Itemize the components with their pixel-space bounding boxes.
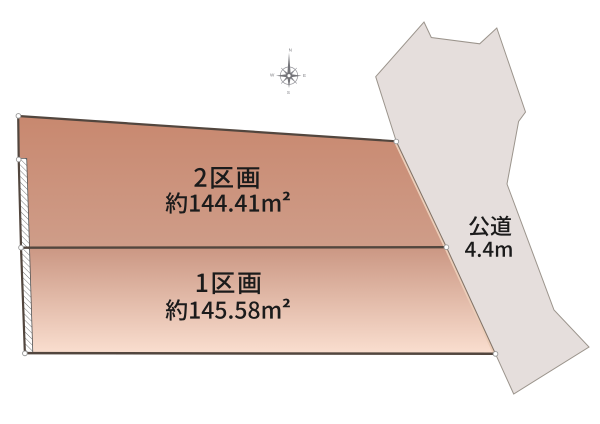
- svg-text:N: N: [289, 47, 292, 52]
- svg-text:E: E: [303, 73, 306, 78]
- svg-text:W: W: [270, 73, 275, 78]
- svg-text:S: S: [287, 90, 290, 95]
